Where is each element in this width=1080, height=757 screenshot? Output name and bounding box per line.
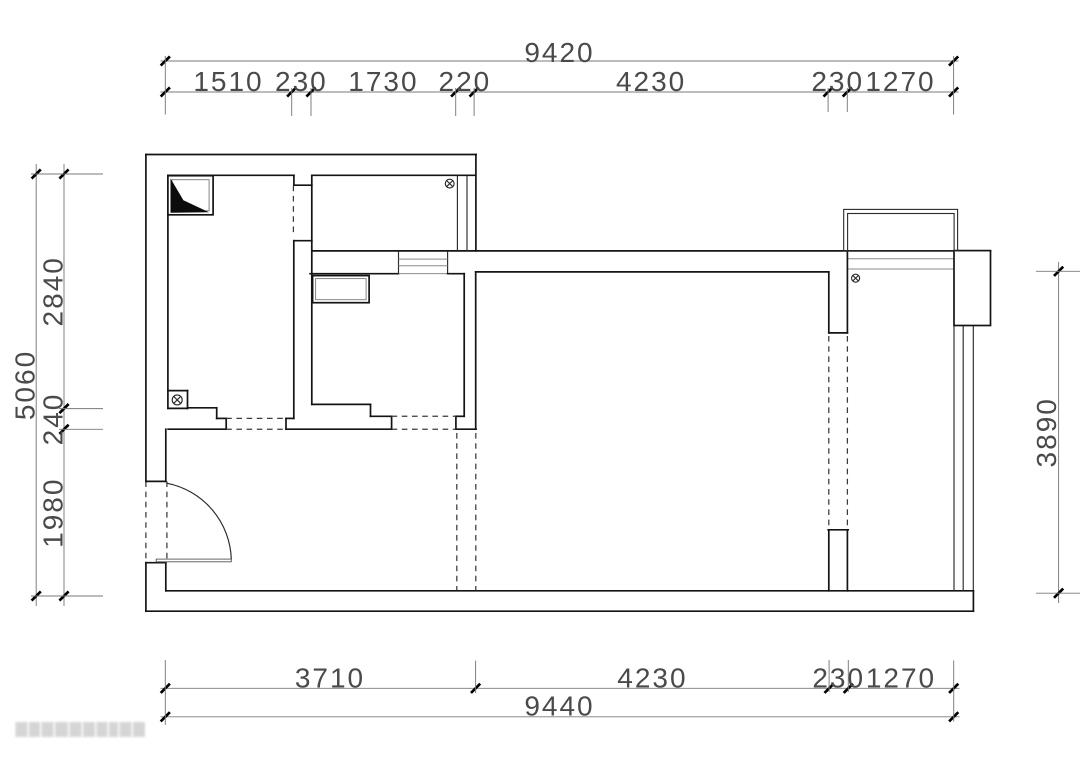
svg-text:1270: 1270 (865, 66, 935, 97)
svg-text:1980: 1980 (37, 478, 68, 548)
svg-text:240: 240 (37, 393, 68, 446)
svg-text:9440: 9440 (524, 690, 594, 721)
svg-text:230: 230 (275, 66, 328, 97)
svg-text:4230: 4230 (616, 66, 686, 97)
svg-text:1510: 1510 (193, 66, 263, 97)
svg-text:9420: 9420 (524, 37, 594, 68)
svg-text:2840: 2840 (37, 256, 68, 326)
svg-text:1730: 1730 (348, 66, 418, 97)
svg-text:230: 230 (811, 66, 864, 97)
svg-text:4230: 4230 (617, 663, 687, 694)
svg-text:3890: 3890 (1031, 397, 1062, 467)
svg-text:1270: 1270 (866, 663, 936, 694)
svg-text:3710: 3710 (295, 663, 365, 694)
svg-text:230: 230 (812, 663, 865, 694)
svg-text:220: 220 (439, 66, 492, 97)
svg-text:5060: 5060 (10, 350, 41, 420)
